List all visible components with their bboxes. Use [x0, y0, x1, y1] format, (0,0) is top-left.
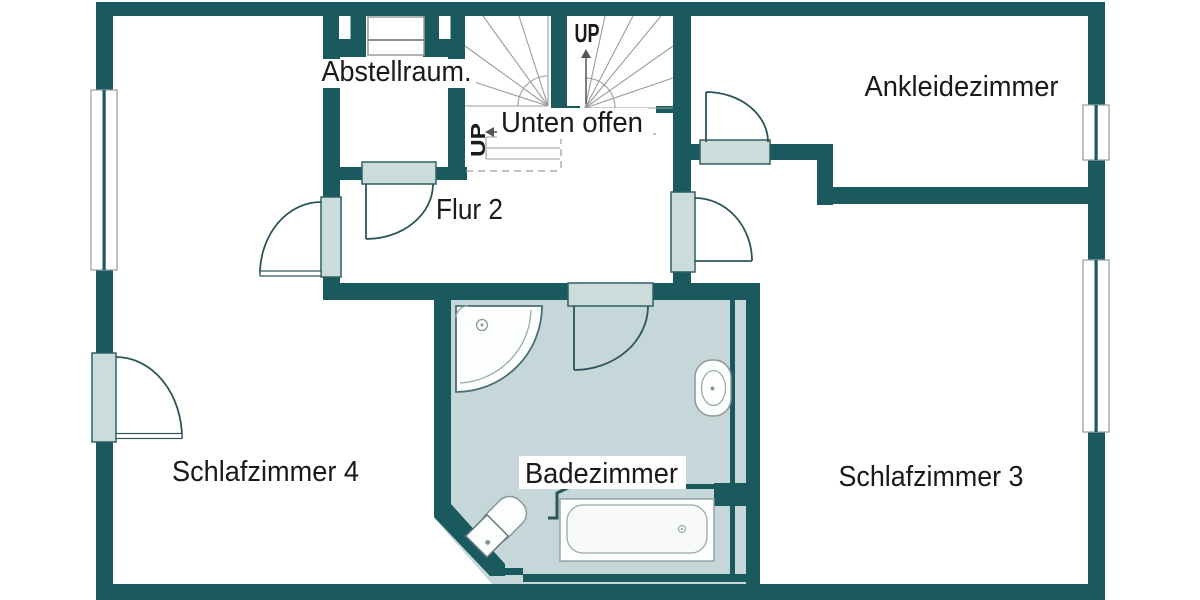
svg-text:Schlafzimmer 4: Schlafzimmer 4 [172, 456, 359, 488]
svg-text:Ankleidezimmer: Ankleidezimmer [865, 71, 1059, 103]
svg-text:UP: UP [468, 123, 490, 157]
svg-text:Badezimmer: Badezimmer [525, 458, 678, 490]
svg-text:Schlafzimmer 3: Schlafzimmer 3 [839, 461, 1024, 493]
svg-text:UP: UP [575, 18, 600, 48]
svg-text:Abstellraum.: Abstellraum. [322, 56, 472, 88]
svg-text:Unten offen: Unten offen [501, 107, 643, 139]
svg-text:Flur 2: Flur 2 [436, 194, 503, 226]
